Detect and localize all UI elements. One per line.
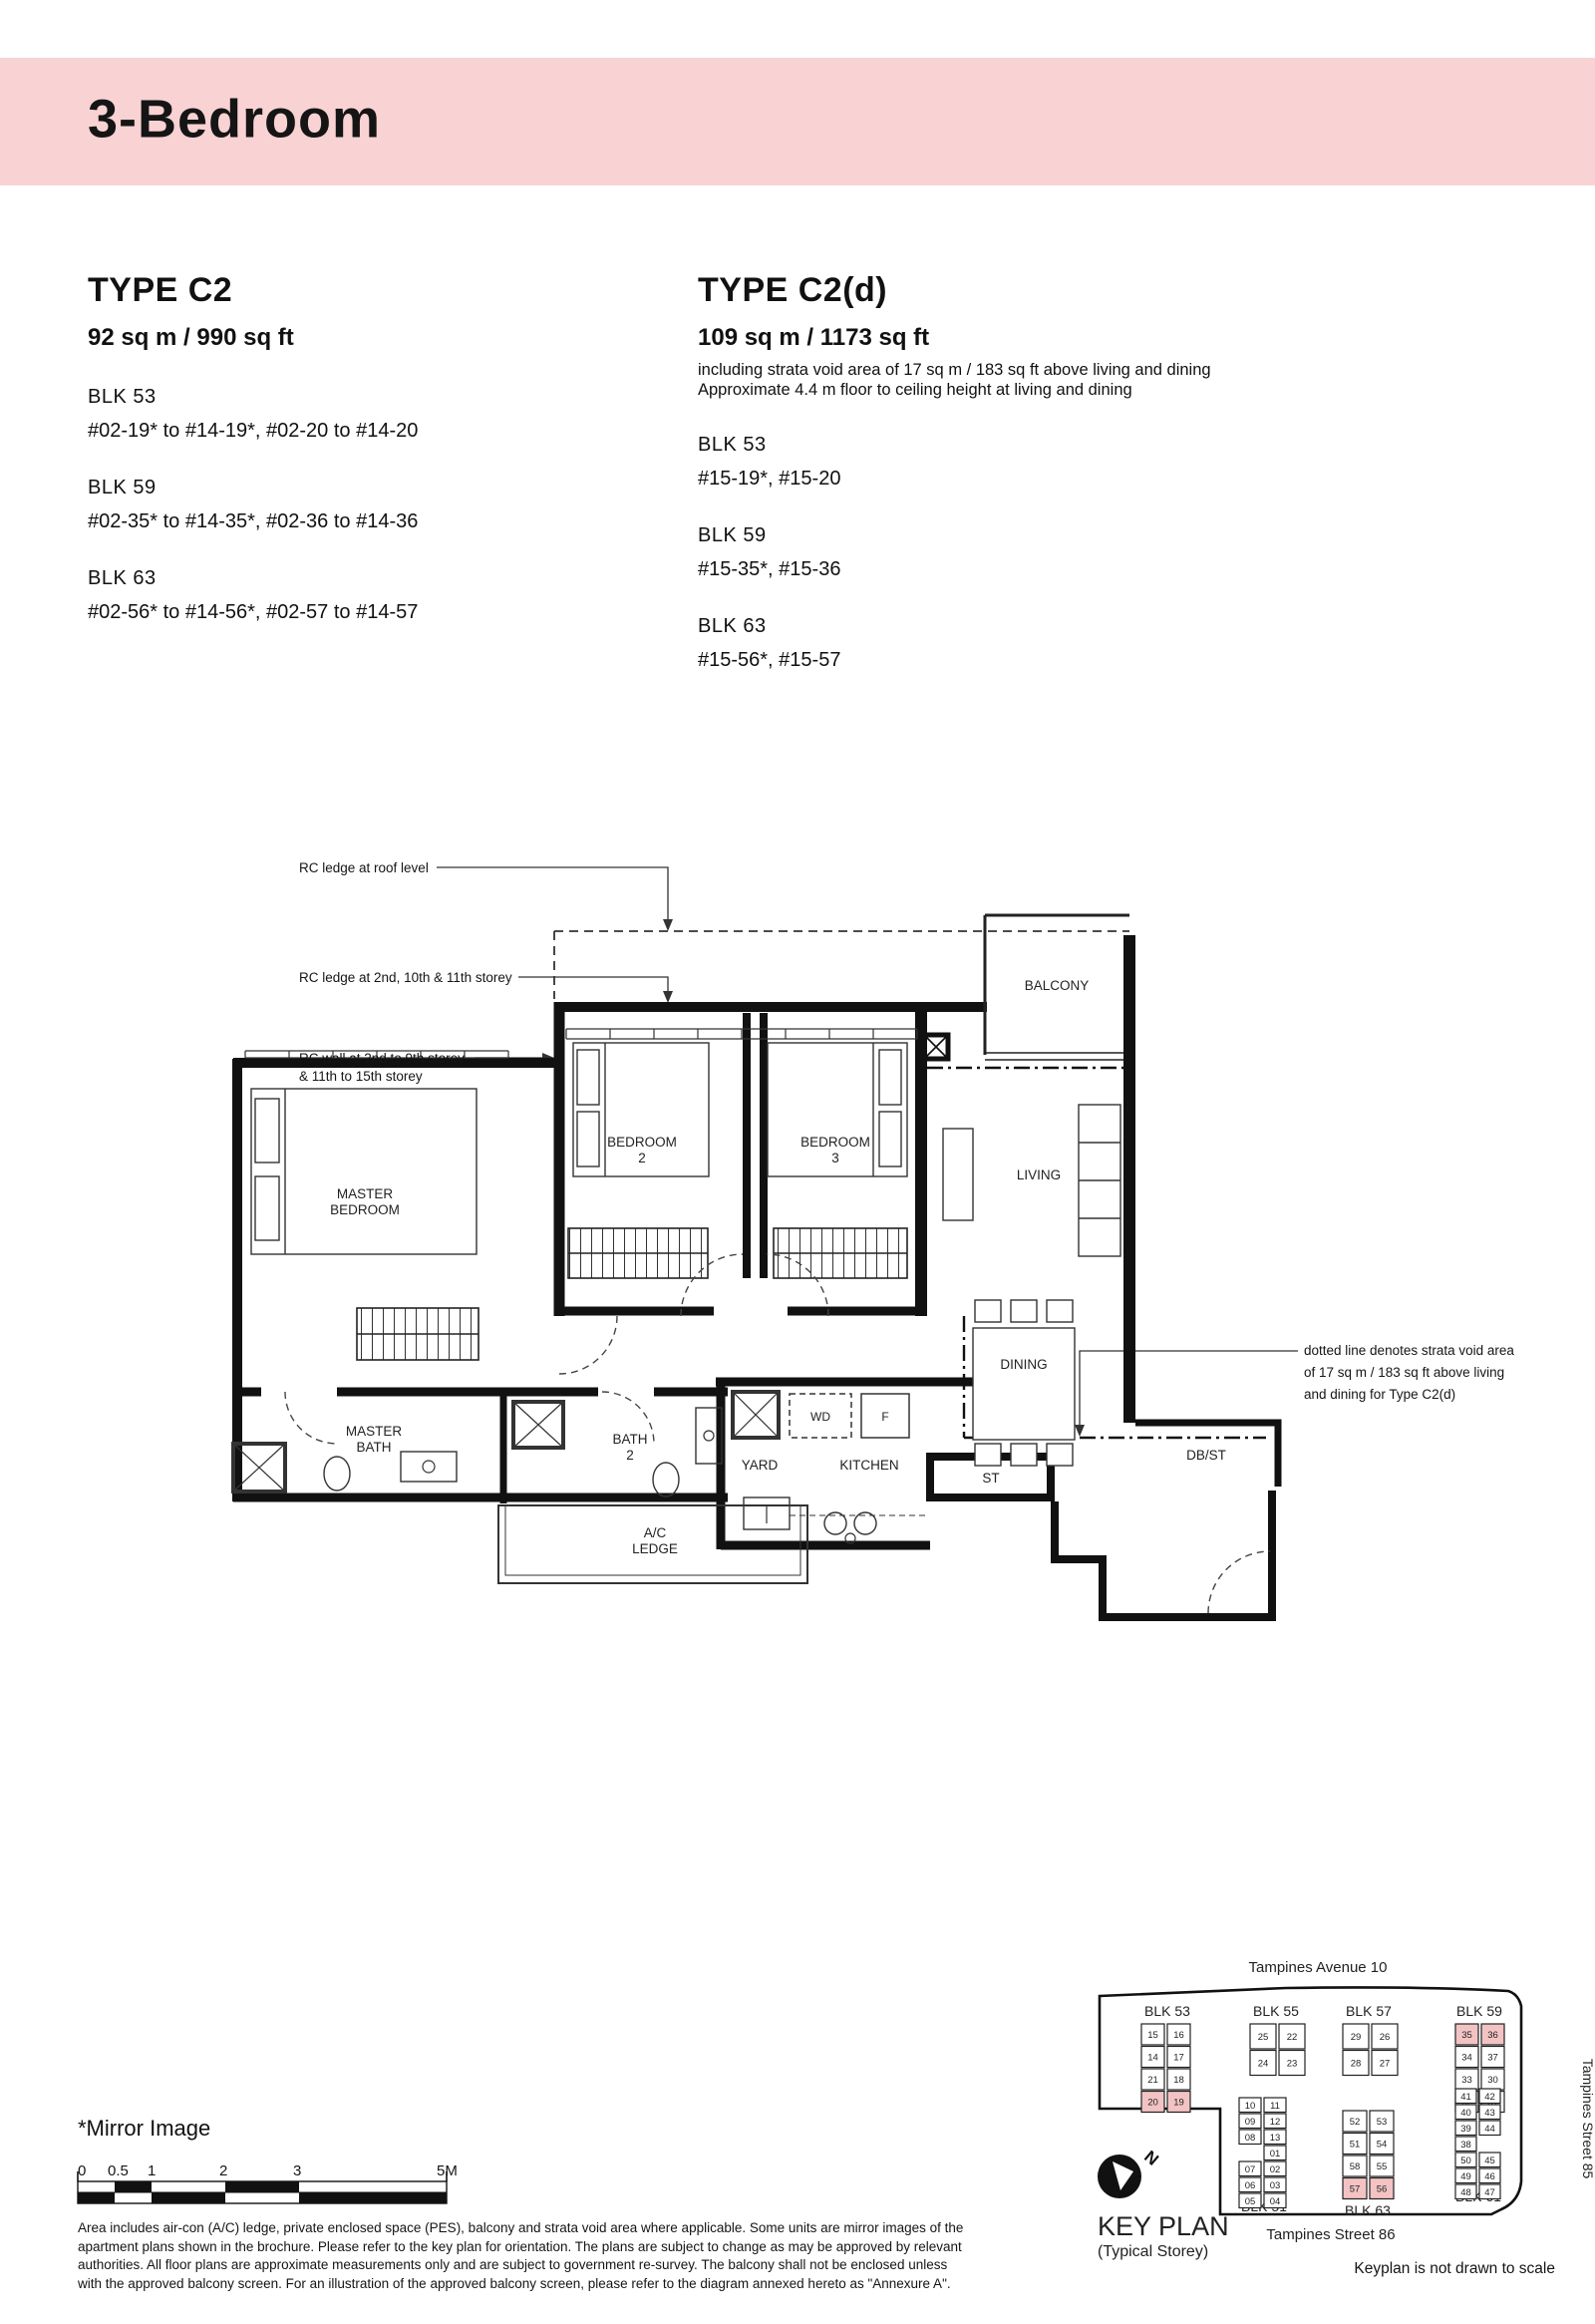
keyplan-unit-number: 23 bbox=[1287, 2059, 1298, 2070]
brochure-page: 3-Bedroom TYPE C2 92 sq m / 990 sq ft BL… bbox=[0, 0, 1595, 2324]
room-label-bedroom3: BEDROOM bbox=[800, 1135, 870, 1150]
keyplan-unit-number: 28 bbox=[1351, 2059, 1362, 2070]
type-c2d-blk-53: BLK 53 #15-19*, #15-20 bbox=[698, 434, 1211, 491]
room-label-master-bath: MASTER bbox=[346, 1424, 403, 1439]
scale-label-2: 2 bbox=[219, 2162, 227, 2179]
shaft-box bbox=[924, 1035, 948, 1059]
mirror-image-note: *Mirror Image bbox=[78, 2116, 210, 2142]
keyplan-unit-number: 47 bbox=[1484, 2187, 1495, 2198]
keyplan-unit-number: 21 bbox=[1147, 2075, 1158, 2086]
keyplan-unit-number: 09 bbox=[1245, 2117, 1256, 2128]
disclaimer-line-3: authorities. All floor plans are approxi… bbox=[78, 2256, 963, 2275]
svg-text:N: N bbox=[1140, 2147, 1162, 2168]
annotation-strata-1: dotted line denotes strata void area bbox=[1304, 1343, 1514, 1358]
room-label-kitchen: KITCHEN bbox=[839, 1458, 898, 1473]
keyplan-block-label: BLK 53 bbox=[1144, 2003, 1190, 2019]
type-c2d-column: TYPE C2(d) 109 sq m / 1173 sq ft includi… bbox=[698, 271, 1211, 672]
keyplan-unit-number: 16 bbox=[1173, 2030, 1184, 2041]
annotation-strata-2: of 17 sq m / 183 sq ft above living bbox=[1304, 1365, 1504, 1380]
keyplan-block-label: BLK 55 bbox=[1253, 2003, 1299, 2019]
keyplan-unit-number: 56 bbox=[1377, 2184, 1388, 2195]
blk-label: BLK 63 bbox=[698, 615, 1211, 638]
keyplan-unit-number: 02 bbox=[1270, 2164, 1281, 2175]
floor-plan: RC ledge at roof level RC ledge at 2nd, … bbox=[169, 847, 1565, 1665]
keyplan-unit-number: 58 bbox=[1350, 2161, 1361, 2172]
keyplan-unit-number: 48 bbox=[1460, 2187, 1471, 2198]
keyplan-street86-label: Tampines Street 86 bbox=[1266, 2226, 1395, 2243]
keyplan-unit-number: 05 bbox=[1245, 2196, 1256, 2207]
keyplan-block-label: BLK 59 bbox=[1456, 2003, 1502, 2019]
keyplan-unit-number: 53 bbox=[1377, 2117, 1388, 2128]
keyplan-unit-number: 20 bbox=[1147, 2098, 1158, 2109]
room-label-bath2-2: 2 bbox=[626, 1448, 634, 1463]
scale-bar: 0 0.5 1 2 3 5M bbox=[70, 2161, 508, 2213]
keyplan-unit-number: 11 bbox=[1270, 2101, 1280, 2112]
keyplan-avenue-label: Tampines Avenue 10 bbox=[1249, 1959, 1388, 1976]
keyplan-unit-number: 34 bbox=[1461, 2053, 1472, 2064]
keyplan-unit-number: 40 bbox=[1460, 2108, 1471, 2119]
keyplan-unit-number: 42 bbox=[1484, 2092, 1495, 2103]
keyplan-unit-number: 22 bbox=[1287, 2032, 1298, 2043]
keyplan-unit-number: 07 bbox=[1245, 2164, 1256, 2175]
keyplan-street85-label: Tampines Street 85 bbox=[1580, 2059, 1595, 2179]
keyplan-unit-number: 44 bbox=[1484, 2124, 1495, 2135]
blk-label: BLK 59 bbox=[698, 524, 1211, 547]
scale-label-0: 0 bbox=[78, 2162, 86, 2179]
room-label-bedroom2-2: 2 bbox=[638, 1151, 646, 1165]
annotation-strata-3: and dining for Type C2(d) bbox=[1304, 1387, 1455, 1402]
blk-label: BLK 63 bbox=[88, 567, 418, 590]
keyplan-unit-number: 04 bbox=[1270, 2196, 1281, 2207]
type-c2-blk-59: BLK 59 #02-35* to #14-35*, #02-36 to #14… bbox=[88, 477, 418, 533]
keyplan-unit-number: 49 bbox=[1460, 2171, 1471, 2182]
blk-units: #02-19* to #14-19*, #02-20 to #14-20 bbox=[88, 420, 418, 443]
keyplan-block-label: BLK 57 bbox=[1346, 2003, 1392, 2019]
scale-label-1: 1 bbox=[148, 2162, 156, 2179]
blk-units: #15-56*, #15-57 bbox=[698, 649, 1211, 672]
scale-label-05: 0.5 bbox=[108, 2162, 129, 2179]
keyplan-unit-number: 13 bbox=[1270, 2133, 1281, 2144]
keyplan-unit-number: 30 bbox=[1487, 2075, 1498, 2086]
type-c2d-blk-63: BLK 63 #15-56*, #15-57 bbox=[698, 615, 1211, 672]
room-label-master-bedroom-2: BEDROOM bbox=[330, 1202, 400, 1217]
type-c2-blk-53: BLK 53 #02-19* to #14-19*, #02-20 to #14… bbox=[88, 386, 418, 443]
wardrobes bbox=[357, 1228, 907, 1360]
keyplan-unit-number: 35 bbox=[1461, 2030, 1472, 2041]
keyplan-subtitle: (Typical Storey) bbox=[1098, 2243, 1208, 2260]
keyplan-unit-number: 19 bbox=[1173, 2098, 1184, 2109]
keyplan-unit-number: 18 bbox=[1173, 2075, 1184, 2086]
annotation-rc-roof: RC ledge at roof level bbox=[299, 860, 429, 875]
keyplan-unit-number: 51 bbox=[1350, 2140, 1361, 2151]
type-c2-column: TYPE C2 92 sq m / 990 sq ft BLK 53 #02-1… bbox=[88, 271, 418, 624]
keyplan-unit-number: 14 bbox=[1147, 2053, 1158, 2064]
keyplan-unit-number: 36 bbox=[1487, 2030, 1498, 2041]
appliance-label-f: F bbox=[881, 1410, 888, 1424]
type-c2d-area: 109 sq m / 1173 sq ft bbox=[698, 324, 1211, 352]
disclaimer-line-1: Area includes air-con (A/C) ledge, priva… bbox=[78, 2219, 963, 2238]
room-label-ac-ledge: A/C bbox=[644, 1525, 667, 1540]
blk-label: BLK 53 bbox=[698, 434, 1211, 457]
keyplan-title: KEY PLAN bbox=[1098, 2211, 1229, 2241]
keyplan-blocks: BLK 531516141721182019BLK 5525222423BLK … bbox=[1141, 2003, 1504, 2218]
room-label-living: LIVING bbox=[1017, 1167, 1061, 1182]
scale-bar-segments bbox=[78, 2171, 447, 2203]
blk-units: #02-56* to #14-56*, #02-57 to #14-57 bbox=[88, 601, 418, 624]
keyplan-unit-number: 15 bbox=[1147, 2030, 1158, 2041]
keyplan-unit-number: 26 bbox=[1380, 2032, 1391, 2043]
type-c2-area: 92 sq m / 990 sq ft bbox=[88, 324, 418, 352]
disclaimer: Area includes air-con (A/C) ledge, priva… bbox=[78, 2219, 963, 2293]
room-label-bath2: BATH bbox=[612, 1432, 647, 1447]
section-banner: 3-Bedroom bbox=[0, 58, 1595, 185]
keyplan-unit-number: 12 bbox=[1270, 2117, 1281, 2128]
keyplan-unit-number: 52 bbox=[1350, 2117, 1361, 2128]
keyplan-unit-number: 45 bbox=[1484, 2156, 1495, 2166]
room-label-st: ST bbox=[982, 1471, 999, 1486]
blk-units: #15-35*, #15-36 bbox=[698, 558, 1211, 581]
room-label-bedroom2: BEDROOM bbox=[607, 1135, 677, 1150]
keyplan-unit-number: 33 bbox=[1461, 2075, 1472, 2086]
blk-label: BLK 53 bbox=[88, 386, 418, 409]
type-c2-blk-63: BLK 63 #02-56* to #14-56*, #02-57 to #14… bbox=[88, 567, 418, 624]
key-plan: Tampines Avenue 10 BLK 53151614172118201… bbox=[1037, 1944, 1595, 2293]
appliance-label-wd: WD bbox=[810, 1410, 830, 1424]
annotation-rc-wall-1: RC wall at 2nd to 9th storey bbox=[299, 1051, 465, 1066]
keyplan-unit-number: 46 bbox=[1484, 2171, 1495, 2182]
keyplan-unit-number: 01 bbox=[1270, 2149, 1281, 2159]
room-label-balcony: BALCONY bbox=[1025, 978, 1090, 993]
keyplan-unit-number: 41 bbox=[1460, 2092, 1471, 2103]
annotation-rc-wall-2: & 11th to 15th storey bbox=[299, 1069, 423, 1084]
room-label-ac-ledge-2: LEDGE bbox=[632, 1541, 678, 1556]
room-label-master-bedroom: MASTER bbox=[337, 1186, 394, 1201]
room-label-master-bath-2: BATH bbox=[356, 1440, 391, 1455]
keyplan-unit-number: 57 bbox=[1350, 2184, 1361, 2195]
keyplan-unit-number: 24 bbox=[1258, 2059, 1269, 2070]
blk-label: BLK 59 bbox=[88, 477, 418, 499]
keyplan-block-label: BLK 63 bbox=[1345, 2202, 1391, 2218]
type-c2d-note-2: Approximate 4.4 m floor to ceiling heigh… bbox=[698, 380, 1211, 400]
type-c2d-title: TYPE C2(d) bbox=[698, 271, 1211, 310]
keyplan-unit-number: 06 bbox=[1245, 2180, 1256, 2191]
keyplan-unit-number: 10 bbox=[1245, 2101, 1256, 2112]
keyplan-unit-number: 08 bbox=[1245, 2133, 1256, 2144]
keyplan-unit-number: 37 bbox=[1487, 2053, 1498, 2064]
annotation-rc-storey: RC ledge at 2nd, 10th & 11th storey bbox=[299, 970, 512, 985]
keyplan-scale-note: Keyplan is not drawn to scale bbox=[1354, 2260, 1555, 2277]
disclaimer-line-4: with the approved balcony screen. For an… bbox=[78, 2275, 963, 2294]
dining-set bbox=[973, 1300, 1075, 1466]
type-c2-title: TYPE C2 bbox=[88, 271, 418, 310]
room-label-bedroom3-2: 3 bbox=[831, 1151, 839, 1165]
keyplan-unit-number: 54 bbox=[1377, 2140, 1388, 2151]
page-title: 3-Bedroom bbox=[88, 89, 381, 151]
keyplan-unit-number: 38 bbox=[1460, 2140, 1471, 2151]
room-label-dbst: DB/ST bbox=[1186, 1448, 1226, 1463]
north-compass-icon: N bbox=[1098, 2147, 1162, 2198]
keyplan-unit-number: 50 bbox=[1460, 2156, 1471, 2166]
room-label-dining: DINING bbox=[1000, 1357, 1047, 1372]
keyplan-unit-number: 03 bbox=[1270, 2180, 1281, 2191]
keyplan-unit-number: 39 bbox=[1460, 2124, 1471, 2135]
walls bbox=[233, 935, 1278, 1617]
scale-label-3: 3 bbox=[293, 2162, 301, 2179]
keyplan-unit-number: 25 bbox=[1258, 2032, 1269, 2043]
room-label-yard: YARD bbox=[742, 1458, 779, 1473]
keyplan-unit-number: 27 bbox=[1380, 2059, 1391, 2070]
type-c2d-blk-59: BLK 59 #15-35*, #15-36 bbox=[698, 524, 1211, 581]
disclaimer-line-2: apartment plans shown in the brochure. P… bbox=[78, 2238, 963, 2257]
keyplan-unit-number: 55 bbox=[1377, 2161, 1388, 2172]
blk-units: #15-19*, #15-20 bbox=[698, 468, 1211, 491]
keyplan-unit-number: 29 bbox=[1351, 2032, 1362, 2043]
type-c2d-note-1: including strata void area of 17 sq m / … bbox=[698, 360, 1211, 380]
keyplan-unit-number: 43 bbox=[1484, 2108, 1495, 2119]
blk-units: #02-35* to #14-35*, #02-36 to #14-36 bbox=[88, 510, 418, 533]
keyplan-unit-number: 17 bbox=[1173, 2053, 1184, 2064]
